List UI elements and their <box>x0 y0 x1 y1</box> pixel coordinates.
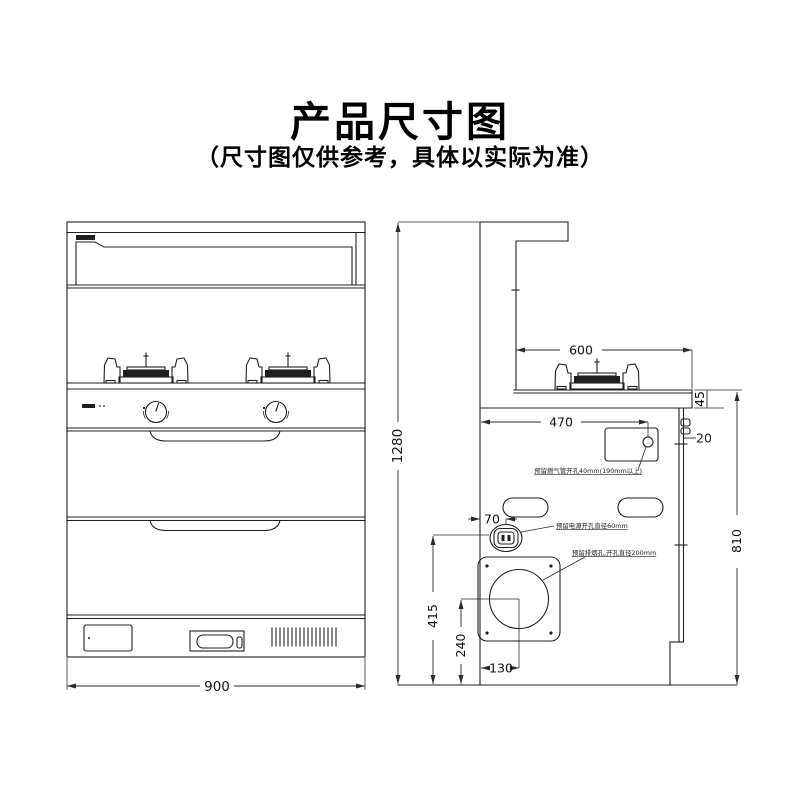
cabinet-back-panel <box>670 408 687 685</box>
power-outlet <box>490 525 522 552</box>
svg-text:470: 470 <box>549 415 573 430</box>
side-view: 20 1280 600 45 <box>390 222 744 685</box>
mounting-clip <box>681 419 690 434</box>
flue-hole-note: 预留排烟孔,开孔直径200mm <box>572 548 656 557</box>
drawer-handle-2 <box>150 521 280 531</box>
vent-slot-left <box>503 498 548 517</box>
nameplate <box>84 625 132 651</box>
gas-hole-plate <box>605 428 658 470</box>
dim-cooktop-lip: 45 <box>692 390 742 408</box>
svg-text:20: 20 <box>696 431 712 446</box>
base-band <box>84 625 336 651</box>
dim-power-hole-height: 415 <box>425 535 489 684</box>
chimney <box>516 222 568 390</box>
dim-front-width: 900 <box>67 658 365 695</box>
dim-gas-hole: 470 <box>481 415 648 438</box>
svg-text:900: 900 <box>204 679 230 695</box>
svg-text:70: 70 <box>484 512 500 527</box>
dim-flue-offset-x: 130 <box>481 661 519 676</box>
svg-text:415: 415 <box>425 604 440 628</box>
svg-text:600: 600 <box>569 343 593 358</box>
burner-right <box>246 353 330 383</box>
svg-text:810: 810 <box>729 529 744 553</box>
brand-logo <box>76 235 95 240</box>
dim-power-hole-x: 70 <box>468 512 517 527</box>
dim-counter-height: 810 <box>729 392 744 684</box>
vent-slot-right <box>618 498 663 517</box>
drawer-handle-1 <box>150 431 280 441</box>
cooktop-profile <box>480 359 692 408</box>
product-dimension-page: 产品尺寸图 （尺寸图仅供参考，具体以实际为准） <box>0 0 800 800</box>
control-panel <box>67 402 365 432</box>
svg-text:130: 130 <box>489 661 513 676</box>
burner-side <box>555 359 639 389</box>
front-view: 900 <box>67 222 365 695</box>
svg-text:1280: 1280 <box>390 429 406 463</box>
svg-text:45: 45 <box>692 391 707 407</box>
panel-logo <box>82 404 95 408</box>
gas-hole-note: 预留燃气管开孔40mm(190mm以上) <box>534 466 642 475</box>
dimension-drawing: 900 <box>0 0 800 800</box>
vent-grille <box>272 628 336 646</box>
hood-profile <box>480 222 568 685</box>
hood-glass-panel <box>67 233 365 289</box>
knob-left <box>143 402 169 423</box>
power-hole-note: 预留电源开孔直径60mm <box>556 521 628 530</box>
knob-right <box>263 402 289 423</box>
dim-bracket-offset: 20 <box>684 431 712 446</box>
front-outline <box>67 222 365 657</box>
svg-text:240: 240 <box>453 634 468 658</box>
burner-left <box>104 353 188 383</box>
